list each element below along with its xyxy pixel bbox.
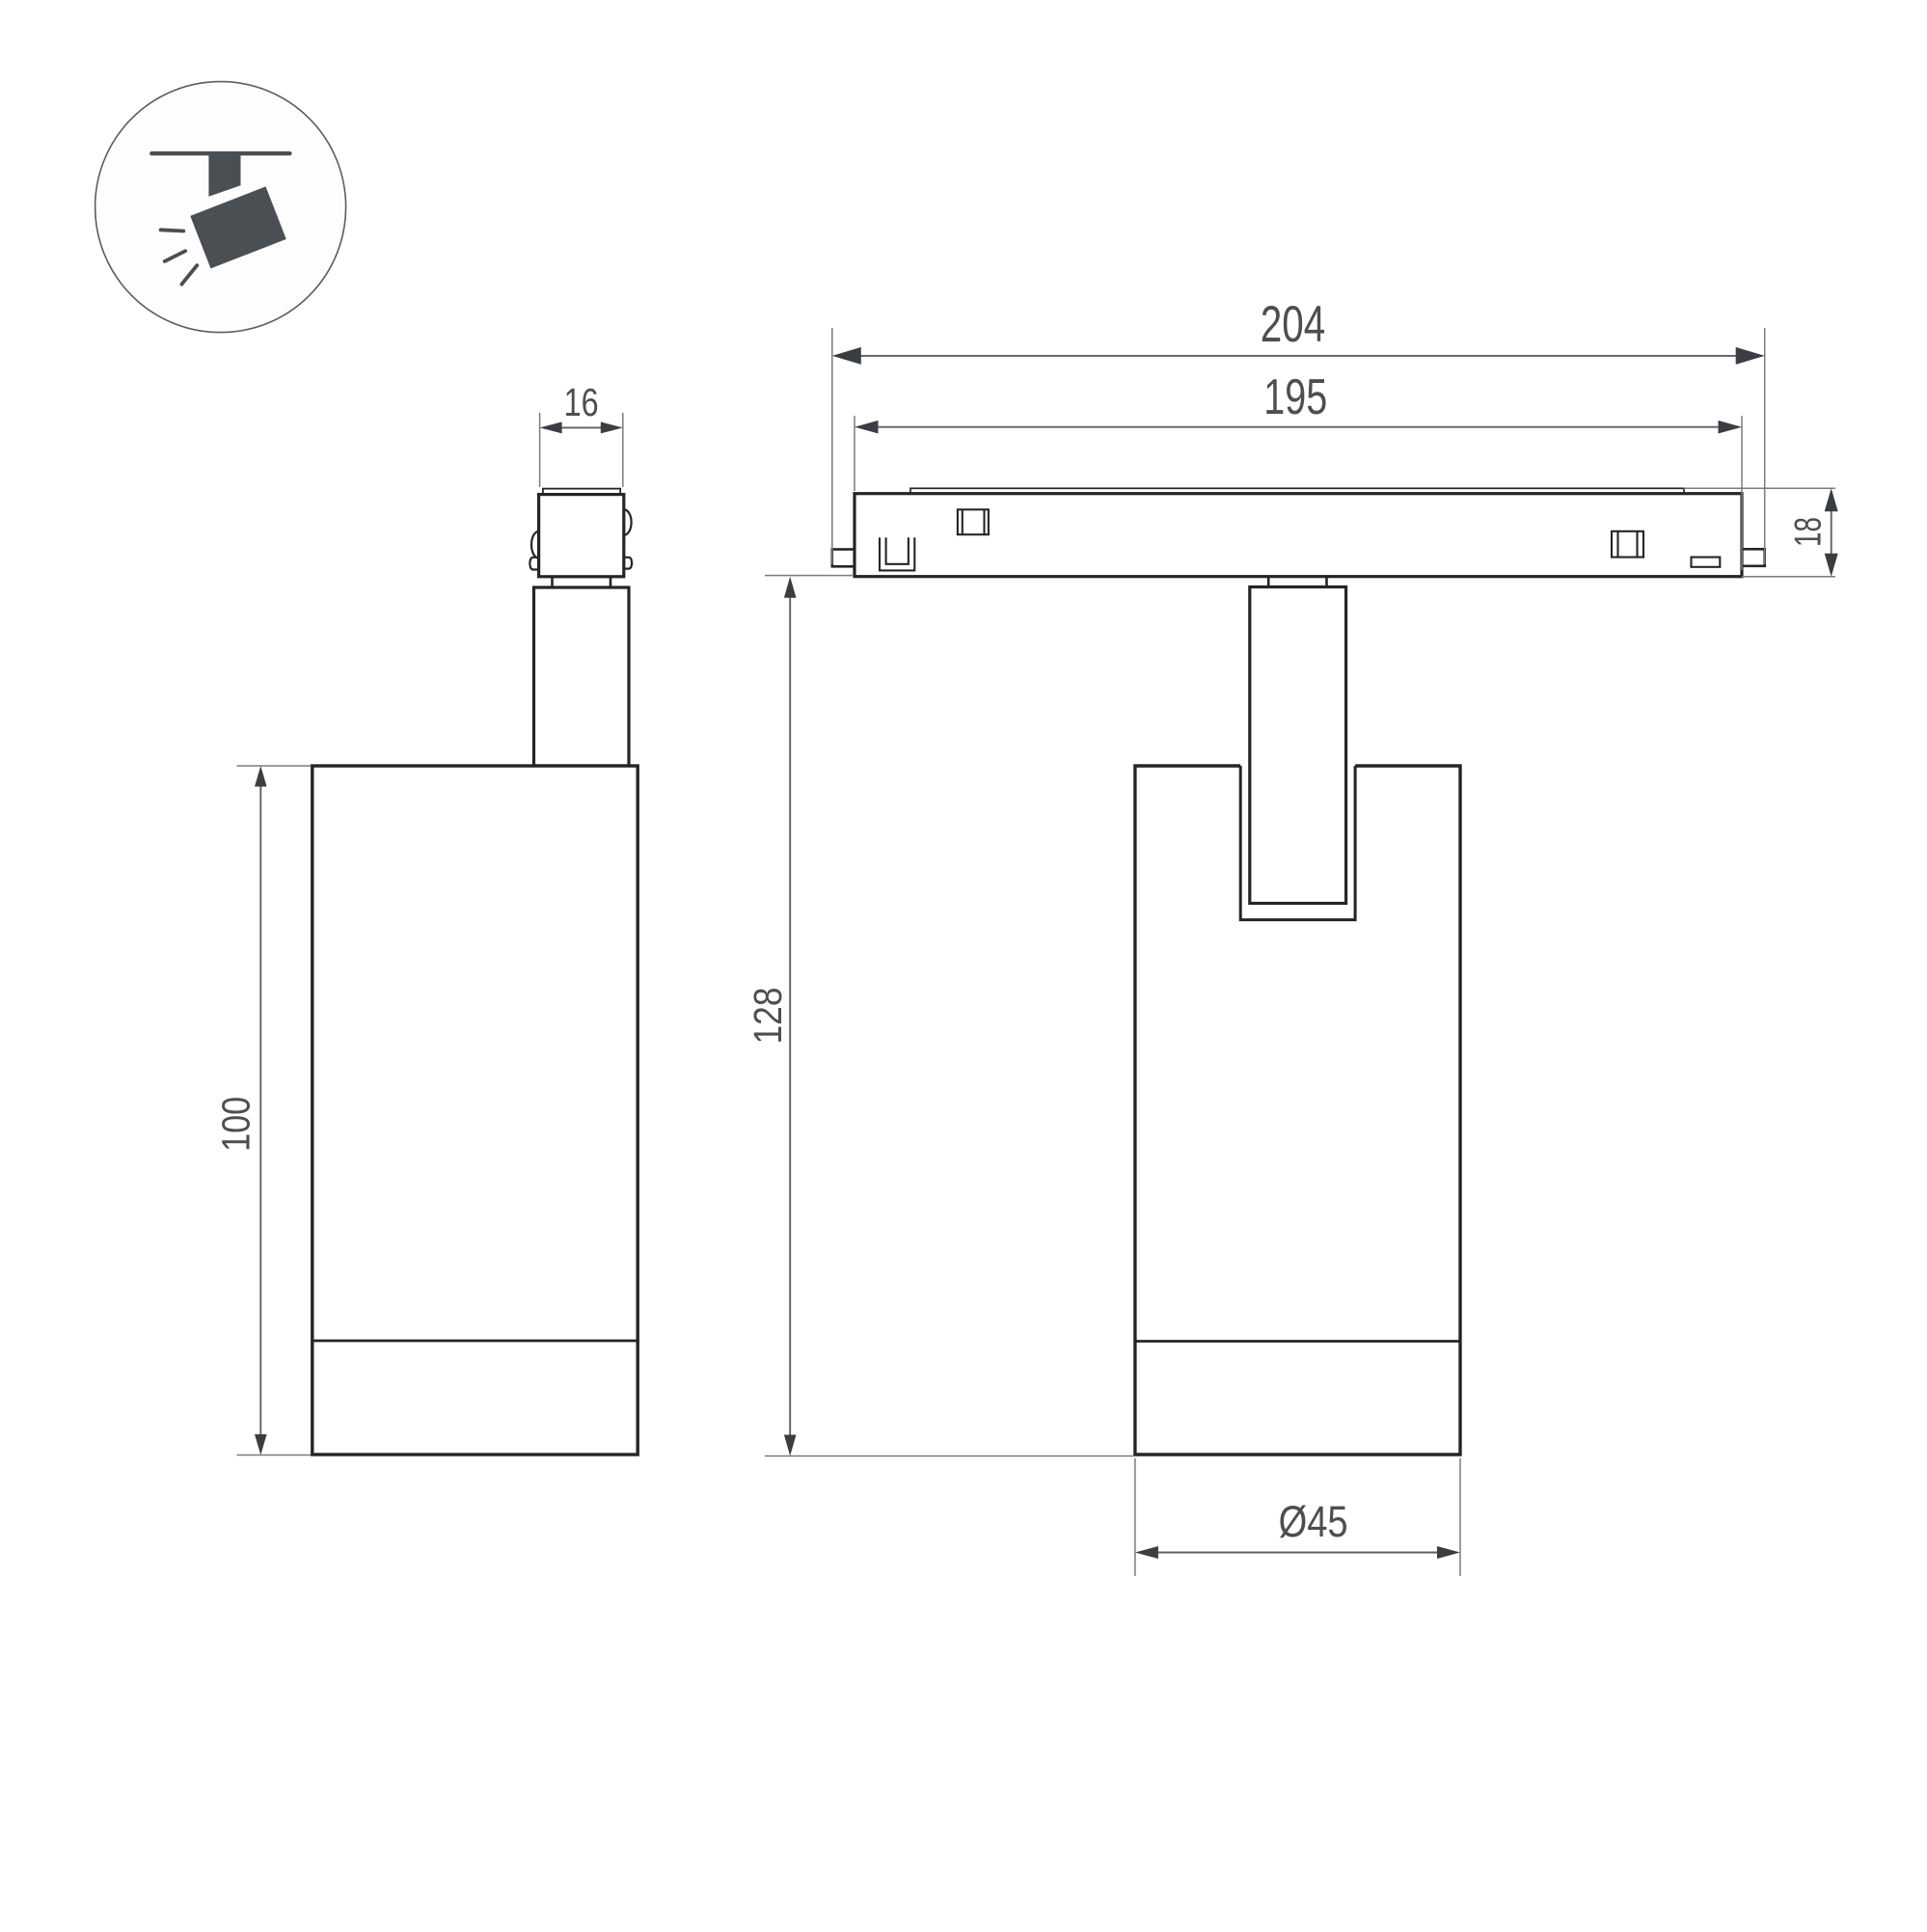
svg-text:100: 100 — [214, 1097, 258, 1152]
svg-text:16: 16 — [564, 380, 599, 424]
svg-text:195: 195 — [1263, 369, 1327, 425]
svg-text:18: 18 — [1788, 517, 1830, 547]
svg-text:128: 128 — [746, 988, 790, 1045]
svg-text:Ø45: Ø45 — [1279, 1497, 1348, 1546]
svg-text:204: 204 — [1261, 296, 1326, 353]
